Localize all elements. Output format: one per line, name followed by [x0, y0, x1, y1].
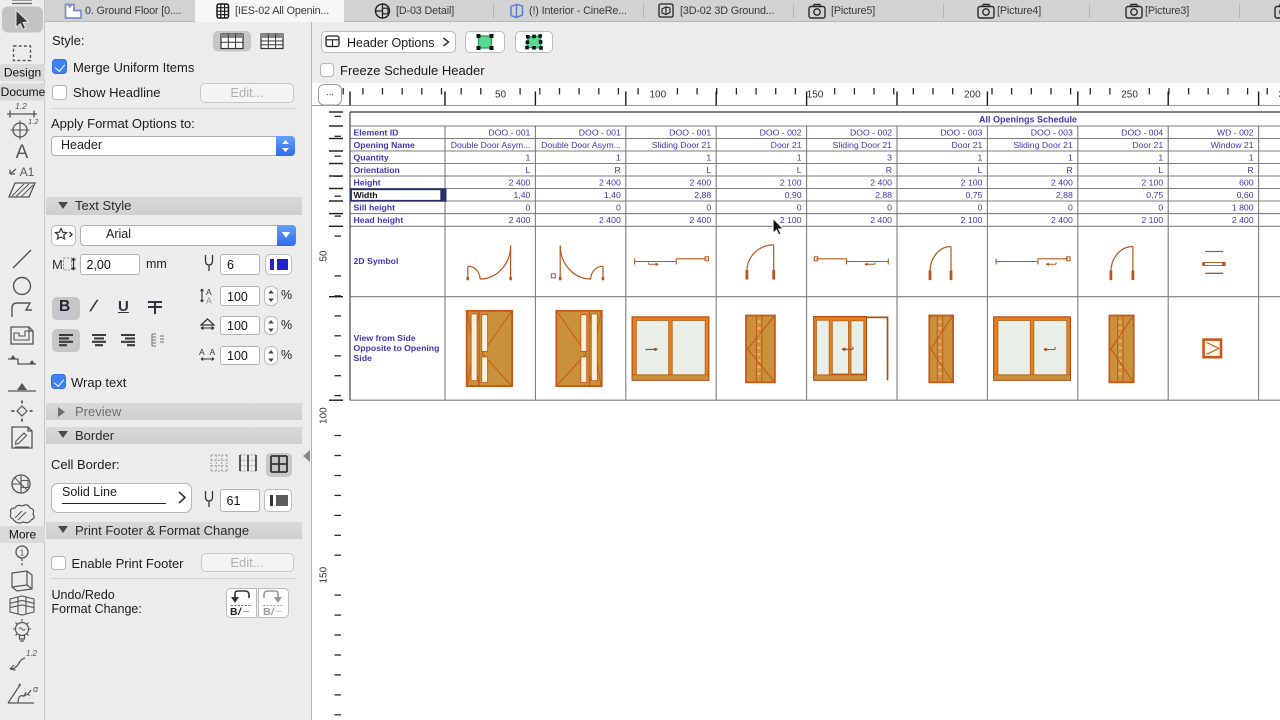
svg-text:2 400: 2 400 [1051, 215, 1073, 225]
svg-text:WD - 002: WD - 002 [1217, 127, 1254, 137]
svg-text:Sliding Door 21: Sliding Door 21 [652, 140, 712, 150]
svg-text:1: 1 [20, 549, 25, 558]
svg-text:2 400: 2 400 [599, 215, 621, 225]
svg-text:1 800: 1 800 [1232, 203, 1254, 213]
svg-text:2D Symbol: 2D Symbol [354, 256, 399, 266]
svg-text:–: – [243, 605, 249, 617]
svg-text:Head height: Head height [354, 215, 404, 225]
svg-text:150: 150 [319, 566, 330, 583]
svg-text:View from Side: View from Side [354, 333, 416, 343]
svg-text:DOO - 002: DOO - 002 [760, 127, 802, 137]
svg-text:1: 1 [526, 152, 531, 162]
svg-text:Opening Name: Opening Name [354, 140, 415, 150]
svg-text:Sliding Door 21: Sliding Door 21 [833, 140, 893, 150]
svg-text:600: 600 [1239, 177, 1254, 187]
svg-text:2 100: 2 100 [1141, 177, 1163, 187]
svg-text:Window 21: Window 21 [1211, 140, 1254, 150]
svg-text:0: 0 [526, 203, 531, 213]
svg-text:2 400: 2 400 [1051, 177, 1073, 187]
svg-text:Sill height: Sill height [354, 203, 396, 213]
svg-text:A1: A1 [20, 165, 35, 179]
svg-text:1: 1 [1158, 152, 1163, 162]
svg-text:L: L [1158, 165, 1163, 175]
svg-text:0,75: 0,75 [1146, 190, 1163, 200]
svg-text:0: 0 [978, 203, 983, 213]
svg-text:2 400: 2 400 [870, 177, 892, 187]
svg-text:200: 200 [964, 90, 981, 101]
svg-text:Double Door Asym...: Double Door Asym... [451, 140, 531, 150]
svg-text:A: A [210, 347, 216, 357]
svg-text:1: 1 [706, 152, 711, 162]
svg-text:L: L [797, 165, 802, 175]
svg-text:2 100: 2 100 [1141, 215, 1163, 225]
svg-text:All Openings Schedule: All Openings Schedule [979, 115, 1077, 125]
svg-text:250: 250 [1121, 90, 1138, 101]
svg-text:0: 0 [1158, 203, 1163, 213]
svg-text:0: 0 [706, 203, 711, 213]
svg-text:Orientation: Orientation [354, 165, 400, 175]
svg-text:2 100: 2 100 [780, 215, 802, 225]
svg-text:1,40: 1,40 [513, 190, 530, 200]
svg-text:0,60: 0,60 [1237, 190, 1254, 200]
svg-text:Side: Side [354, 353, 373, 363]
svg-text:Docume: Docume [1, 85, 45, 99]
svg-text:M: M [52, 257, 63, 272]
svg-text:1.2: 1.2 [26, 649, 38, 658]
svg-text:A: A [199, 347, 205, 357]
svg-text:150: 150 [807, 90, 824, 101]
svg-text:DOO - 002: DOO - 002 [850, 127, 892, 137]
svg-text:1: 1 [978, 152, 983, 162]
svg-text:More: More [9, 528, 37, 542]
svg-text:1.2: 1.2 [15, 101, 27, 111]
svg-text:R: R [1067, 165, 1073, 175]
svg-text:2 400: 2 400 [689, 177, 711, 187]
svg-text:2 100: 2 100 [780, 177, 802, 187]
svg-text:L: L [978, 165, 983, 175]
svg-text:0: 0 [616, 203, 621, 213]
svg-text:DOO - 003: DOO - 003 [940, 127, 982, 137]
svg-text:...: ... [326, 87, 334, 97]
svg-text:DOO - 001: DOO - 001 [669, 127, 711, 137]
svg-text:Design: Design [4, 66, 41, 80]
svg-text:2 400: 2 400 [509, 215, 531, 225]
svg-text:2 100: 2 100 [961, 177, 983, 187]
svg-text:DOO - 001: DOO - 001 [579, 127, 621, 137]
svg-text:Door 21: Door 21 [771, 140, 802, 150]
svg-text:1.2: 1.2 [28, 117, 39, 126]
svg-text:Width: Width [354, 190, 378, 200]
svg-text:1: 1 [616, 152, 621, 162]
svg-text:L: L [526, 165, 531, 175]
svg-text:1: 1 [797, 152, 802, 162]
svg-text:2 400: 2 400 [689, 215, 711, 225]
svg-text:0: 0 [797, 203, 802, 213]
svg-text:Height: Height [354, 177, 381, 187]
svg-text:1: 1 [1249, 152, 1254, 162]
svg-text:2,88: 2,88 [694, 190, 711, 200]
svg-text:2 400: 2 400 [509, 177, 531, 187]
svg-text:0: 0 [887, 203, 892, 213]
svg-text:A: A [16, 142, 29, 163]
svg-text:0: 0 [1068, 203, 1073, 213]
svg-text:0,90: 0,90 [785, 190, 802, 200]
svg-text:/: / [270, 606, 275, 617]
svg-text:Door 21: Door 21 [1132, 140, 1163, 150]
svg-text:2 100: 2 100 [961, 215, 983, 225]
svg-text:2,88: 2,88 [875, 190, 892, 200]
svg-text:100: 100 [649, 90, 666, 101]
svg-text:R: R [886, 165, 892, 175]
svg-text:100: 100 [319, 407, 330, 424]
svg-text:1: 1 [1068, 152, 1073, 162]
svg-text:50: 50 [495, 90, 507, 101]
svg-text:L: L [706, 165, 711, 175]
svg-text:R: R [615, 165, 621, 175]
svg-text:Double Door Asym...: Double Door Asym... [541, 140, 621, 150]
svg-text:/: / [237, 606, 242, 617]
svg-text:2,88: 2,88 [1056, 190, 1073, 200]
svg-text:DOO - 003: DOO - 003 [1031, 127, 1073, 137]
svg-text:2 400: 2 400 [599, 177, 621, 187]
svg-text:1,40: 1,40 [604, 190, 621, 200]
svg-text:α: α [33, 684, 39, 694]
svg-text:A: A [206, 296, 212, 306]
svg-text:2 400: 2 400 [1232, 215, 1254, 225]
svg-text:Opposite to Opening: Opposite to Opening [354, 343, 440, 353]
svg-text:Element ID: Element ID [354, 127, 399, 137]
svg-text:–: – [276, 605, 282, 617]
svg-text:2 400: 2 400 [870, 215, 892, 225]
svg-text:R: R [1247, 165, 1253, 175]
svg-text:Quantity: Quantity [354, 152, 389, 162]
svg-text:DOO - 001: DOO - 001 [488, 127, 530, 137]
svg-text:B: B [230, 606, 238, 617]
svg-text:50: 50 [319, 250, 330, 262]
svg-text:3: 3 [887, 152, 892, 162]
svg-text:Sliding Door 21: Sliding Door 21 [1013, 140, 1073, 150]
svg-text:Door 21: Door 21 [951, 140, 982, 150]
svg-text:0,75: 0,75 [965, 190, 982, 200]
svg-text:DOO - 004: DOO - 004 [1121, 127, 1163, 137]
svg-text:B: B [263, 606, 271, 617]
